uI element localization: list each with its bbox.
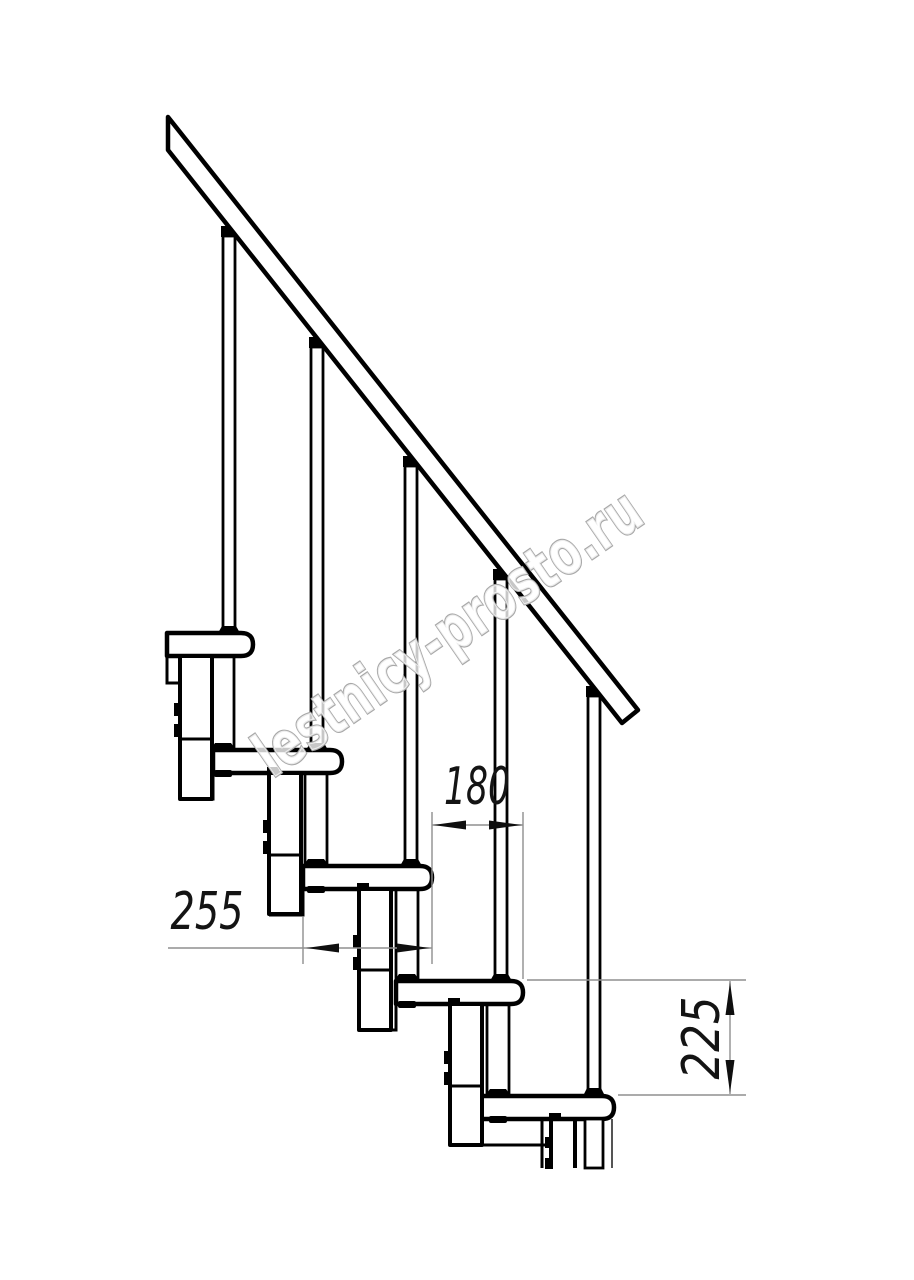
support-tube	[396, 889, 418, 981]
tread-nut	[489, 1116, 507, 1123]
arrowhead-left	[306, 944, 339, 953]
tread-nut	[398, 1001, 416, 1008]
dimension-180: 180	[432, 757, 523, 979]
support-tube	[305, 773, 327, 866]
box-corner-nut	[549, 1113, 561, 1120]
baluster-5	[586, 686, 602, 1098]
baluster-tube	[223, 236, 235, 635]
staircase-drawing: 180 255 225 lestnicy-prosto.ru	[0, 0, 914, 1280]
dimension-225: 225	[527, 980, 746, 1095]
support-tube-cutoff	[585, 1119, 603, 1168]
dimension-label-180: 180	[444, 757, 510, 817]
box-column	[180, 656, 212, 799]
technical-drawing-canvas: 180 255 225 lestnicy-prosto.ru	[0, 0, 914, 1280]
baluster-1	[221, 226, 237, 635]
bolt	[545, 1137, 553, 1148]
arrowhead-left	[433, 821, 466, 830]
tread-1	[167, 633, 253, 656]
dimension-label-225: 225	[672, 997, 732, 1080]
support-tube	[487, 1004, 509, 1096]
tread-nut	[214, 770, 232, 777]
support-tube	[212, 656, 234, 750]
baluster-tube	[588, 696, 600, 1098]
dimension-label-255: 255	[171, 882, 244, 942]
box-column	[359, 889, 391, 1030]
bottom-support-cutoff	[542, 1119, 612, 1169]
tread-nut	[307, 886, 325, 893]
box-column	[269, 773, 301, 914]
bolt	[545, 1158, 553, 1169]
box-column	[450, 1004, 482, 1145]
